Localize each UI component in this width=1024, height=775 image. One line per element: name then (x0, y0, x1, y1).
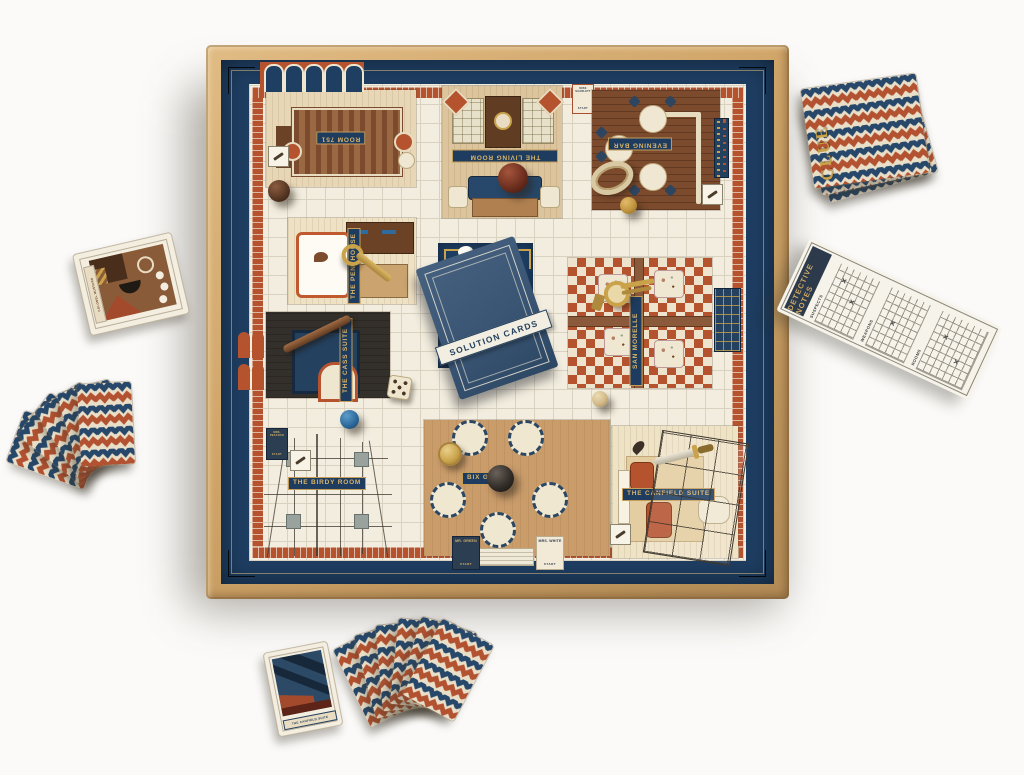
candlestick-token (438, 442, 462, 466)
conservatory-ridge (316, 434, 318, 556)
dagger-handle (697, 443, 714, 454)
door-knob (238, 332, 250, 358)
arch (324, 64, 344, 92)
clue-board-game-photo: ROOM 751 THE LIVING ROOM MISS SCARLETT S… (0, 0, 1024, 775)
grill-table (430, 482, 466, 518)
cass-suite-label: THE CASS SUITE (340, 318, 353, 402)
evening-bar-label-text: EVENING BAR (613, 141, 667, 148)
grill-table (480, 512, 516, 548)
portrait-monocle (135, 255, 155, 275)
planter (286, 514, 301, 529)
dagger-card-space (268, 146, 289, 167)
start-tag-green-name: MR. GREEN (455, 539, 477, 543)
dagger-card-space (702, 184, 723, 205)
arch (264, 64, 284, 92)
san-morelle-window (714, 288, 741, 352)
room-751-label-text: ROOM 751 (321, 135, 360, 142)
room-card-canfield-suite: THE CANFIELD SUITE (262, 640, 343, 737)
dagger-card-space (610, 524, 631, 545)
dagger-blade (651, 449, 694, 467)
start-tag-white-name: MRS. WHITE (539, 539, 562, 543)
penthouse-pillow (314, 252, 328, 262)
conservatory-line (340, 438, 341, 556)
birdy-room-label: THE BIRDY ROOM (288, 477, 366, 490)
grill-table (508, 420, 544, 456)
living-room-armchair (540, 186, 560, 208)
start-tag-scarlett-name: MISS SCARLETT (574, 87, 592, 93)
room-card-art (272, 650, 332, 716)
start-tag-green: MR. GREEN START (452, 536, 480, 570)
die (386, 374, 412, 400)
arch (304, 64, 324, 92)
door-knob (252, 332, 264, 358)
clock-face (494, 112, 512, 130)
san-morelle-label-text: SAN MORELLE (633, 313, 640, 369)
canfield-chair (630, 462, 654, 490)
start-tag-white: MRS. WHITE START (536, 536, 564, 570)
bar-table (639, 163, 667, 191)
room-751-label: ROOM 751 (316, 132, 365, 145)
bar-shelf-strip (714, 118, 729, 178)
pawn-mustard (620, 197, 637, 214)
detective-notes-pad: DETECTIVE NOTES SUSPECTS ✕ ✕ WEAPONS ✕ R… (776, 238, 1002, 400)
room-751-chair (394, 132, 414, 152)
arch (284, 64, 304, 92)
living-room-label-text: THE LIVING ROOM (470, 153, 541, 160)
portrait-button (160, 282, 170, 292)
pawn-black (487, 465, 514, 492)
card-fan-left-card (76, 381, 136, 468)
living-room-label: THE LIVING ROOM (452, 150, 558, 163)
portrait-button (158, 294, 168, 304)
birdy-room-label-text: THE BIRDY ROOM (293, 480, 361, 487)
arch (344, 64, 364, 92)
portrait-button (155, 271, 165, 281)
living-room-coffee-table (472, 198, 538, 217)
pawn-white (592, 391, 608, 407)
planter (354, 452, 369, 467)
start-tag-peacock-name: MRS. PEACOCK (268, 431, 286, 437)
portrait-mustache (119, 280, 143, 296)
cass-suite-label-text: THE CASS SUITE (343, 328, 350, 393)
start-tag-green-start: START (460, 563, 472, 567)
dagger-card-space (290, 450, 311, 471)
room-751-side-table (398, 152, 415, 169)
conservatory-line (264, 494, 392, 495)
pawn-scarlett (498, 163, 528, 193)
planter (354, 514, 369, 529)
pawn-peacock (340, 410, 359, 429)
living-room-armchair (448, 186, 468, 208)
penthouse-book (382, 230, 396, 234)
conservatory-line (264, 526, 392, 527)
bar-counter-side (696, 112, 701, 204)
start-tag-white-start: START (544, 563, 556, 567)
entry-mat (478, 548, 534, 566)
revolver-grip (591, 293, 605, 311)
suspect-card-colonel-mustard: COLONEL MUSTARD (72, 232, 190, 337)
start-tag-peacock: MRS. PEACOCK START (266, 428, 288, 460)
start-tag-scarlett-start: START (578, 108, 588, 111)
start-tag-peacock-start: START (272, 454, 282, 457)
start-tag-scarlett: MISS SCARLETT START (572, 84, 594, 114)
evening-bar-label: EVENING BAR (608, 138, 672, 151)
door-knob (252, 364, 264, 390)
san-morelle-table (654, 340, 684, 368)
clue-rulebook: CLUE (799, 72, 930, 189)
bar-table (639, 105, 667, 133)
grill-table (532, 482, 568, 518)
pawn-brown (268, 180, 290, 202)
door-knob (238, 364, 250, 390)
